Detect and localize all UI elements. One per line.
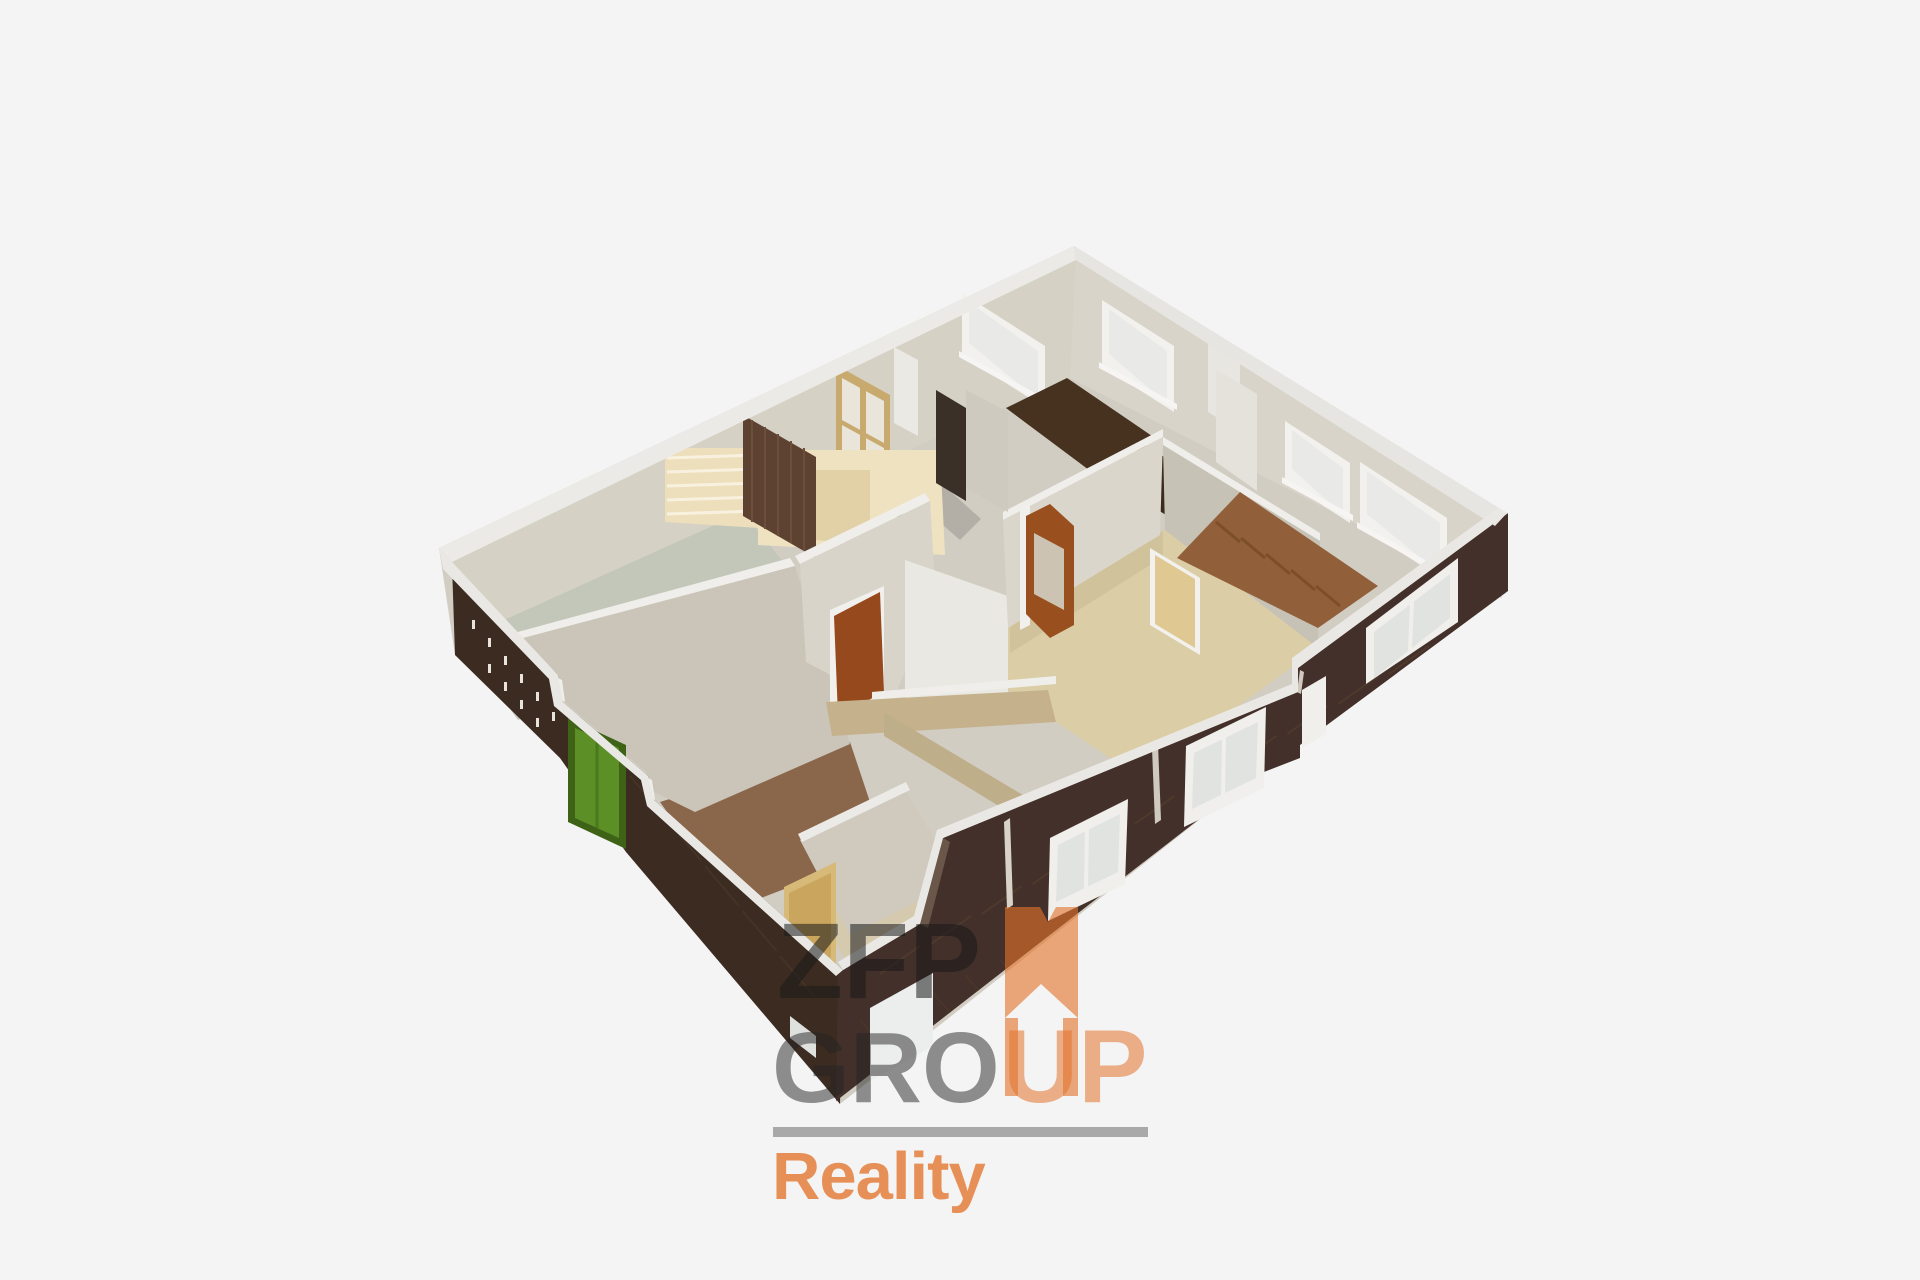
svg-text:GRO: GRO xyxy=(772,1012,1000,1124)
svg-text:Reality: Reality xyxy=(772,1139,985,1214)
svg-text:UP: UP xyxy=(1003,1009,1147,1125)
svg-text:ZFP: ZFP xyxy=(777,900,981,1021)
